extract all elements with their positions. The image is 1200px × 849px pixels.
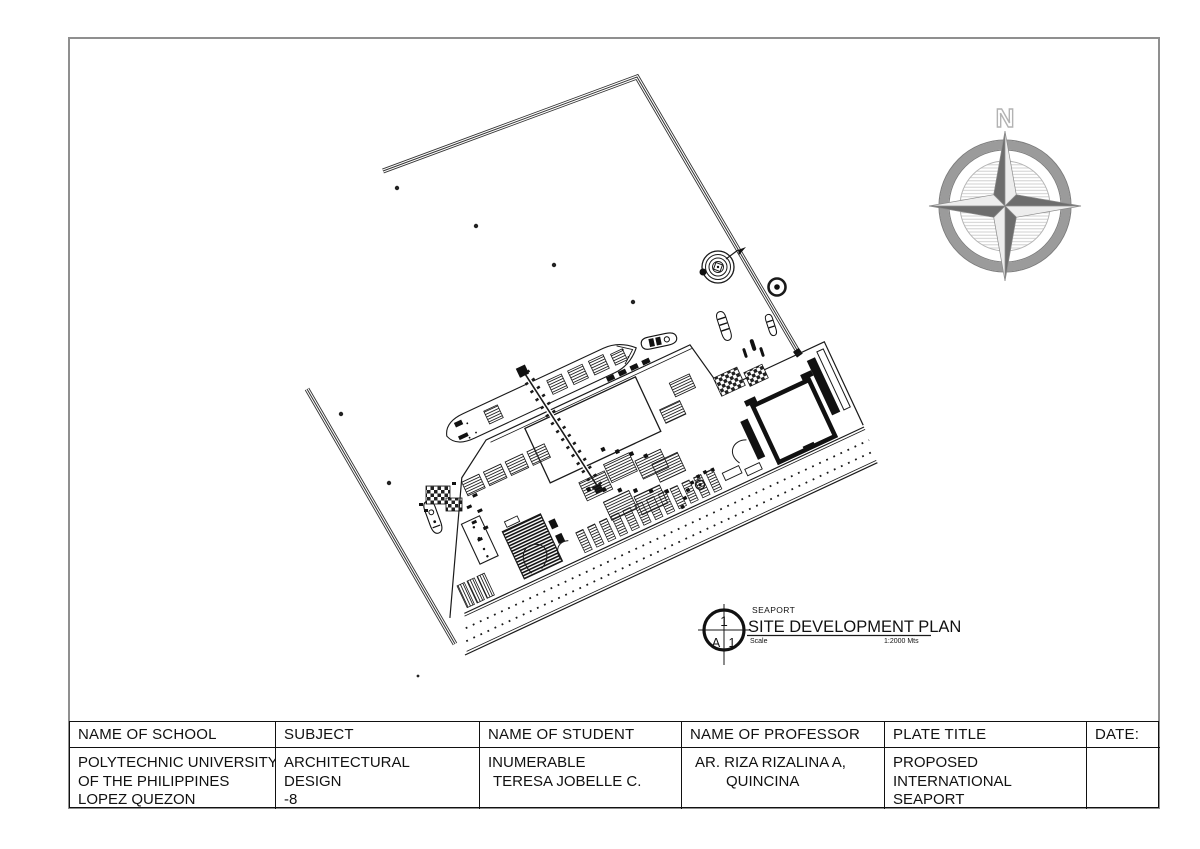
titleblock-header-subject: SUBJECT bbox=[276, 722, 480, 748]
professor-line: QUINCINA bbox=[690, 773, 880, 792]
sheet-number: 1 bbox=[729, 636, 736, 650]
channel-marker-icon bbox=[769, 279, 786, 296]
student-line: TERESA JOBELLE C. bbox=[488, 773, 677, 792]
warehouse-striped bbox=[499, 502, 572, 579]
plate-title-line: PROPOSED bbox=[893, 754, 1082, 773]
subject-line: DESIGN bbox=[284, 773, 475, 792]
titleblock-header-student: NAME OF STUDENT bbox=[480, 722, 682, 748]
titleblock-header-plate-title: PLATE TITLE bbox=[885, 722, 1087, 748]
school-line: OF THE PHILIPPINES bbox=[78, 773, 271, 792]
sheet-letter: A bbox=[712, 636, 721, 650]
plate-title-line: SEAPORT bbox=[893, 791, 1082, 809]
school-line: POLYTECHNIC UNIVERSITY bbox=[78, 754, 271, 773]
school-line: LOPEZ QUEZON bbox=[78, 791, 271, 809]
skiff-markers bbox=[742, 339, 765, 359]
compass-rose-icon: N bbox=[929, 103, 1081, 281]
detail-number: 1 bbox=[720, 614, 728, 629]
lighthouse-icon bbox=[700, 247, 747, 283]
titleblock-value-plate-title: PROPOSED INTERNATIONAL SEAPORT bbox=[885, 748, 1087, 809]
titleblock-header-professor: NAME OF PROFESSOR bbox=[682, 722, 885, 748]
detail-callout: 1 A 1 SEAPORT SITE DEVELOPMENT PLAN Scal… bbox=[698, 604, 961, 665]
subject-line: ARCHITECTURAL bbox=[284, 754, 475, 773]
breakwater-north bbox=[383, 77, 803, 358]
professor-line: AR. RIZA RIZALINA A, bbox=[690, 754, 880, 773]
student-line: INUMERABLE bbox=[488, 754, 677, 773]
ferry-boat bbox=[715, 310, 733, 341]
titleblock-value-student: INUMERABLE TERESA JOBELLE C. bbox=[480, 748, 682, 809]
plate-title-line: INTERNATIONAL bbox=[893, 773, 1082, 792]
titleblock-value-subject: ARCHITECTURAL DESIGN -8 bbox=[276, 748, 480, 809]
tugboat bbox=[640, 331, 678, 350]
scale-value: 1:2000 Mts bbox=[884, 638, 919, 645]
compass-north-label: N bbox=[996, 103, 1015, 133]
pilot-boat bbox=[422, 499, 444, 535]
title-block: NAME OF SCHOOL SUBJECT NAME OF STUDENT N… bbox=[69, 721, 1159, 808]
port-terminal bbox=[364, 246, 880, 655]
drawing-sheet: N 1 A 1 SEAPORT SITE DEVELOPMENT PLAN Sc… bbox=[0, 0, 1200, 849]
drawing-title: SITE DEVELOPMENT PLAN bbox=[748, 618, 961, 636]
slipway-sheds bbox=[434, 516, 512, 608]
titleblock-value-professor: AR. RIZA RIZALINA A, QUINCINA bbox=[682, 748, 885, 809]
titleblock-value-date bbox=[1087, 748, 1160, 809]
site-plan: N 1 A 1 SEAPORT SITE DEVELOPMENT PLAN Sc… bbox=[307, 77, 1081, 677]
titleblock-header-school: NAME OF SCHOOL bbox=[70, 722, 276, 748]
titleblock-value-school: POLYTECHNIC UNIVERSITY OF THE PHILIPPINE… bbox=[70, 748, 276, 809]
drawing-supertitle: SEAPORT bbox=[752, 605, 795, 615]
scale-label: Scale bbox=[750, 638, 768, 645]
subject-line: -8 bbox=[284, 791, 475, 809]
titleblock-header-date: DATE: bbox=[1087, 722, 1160, 748]
